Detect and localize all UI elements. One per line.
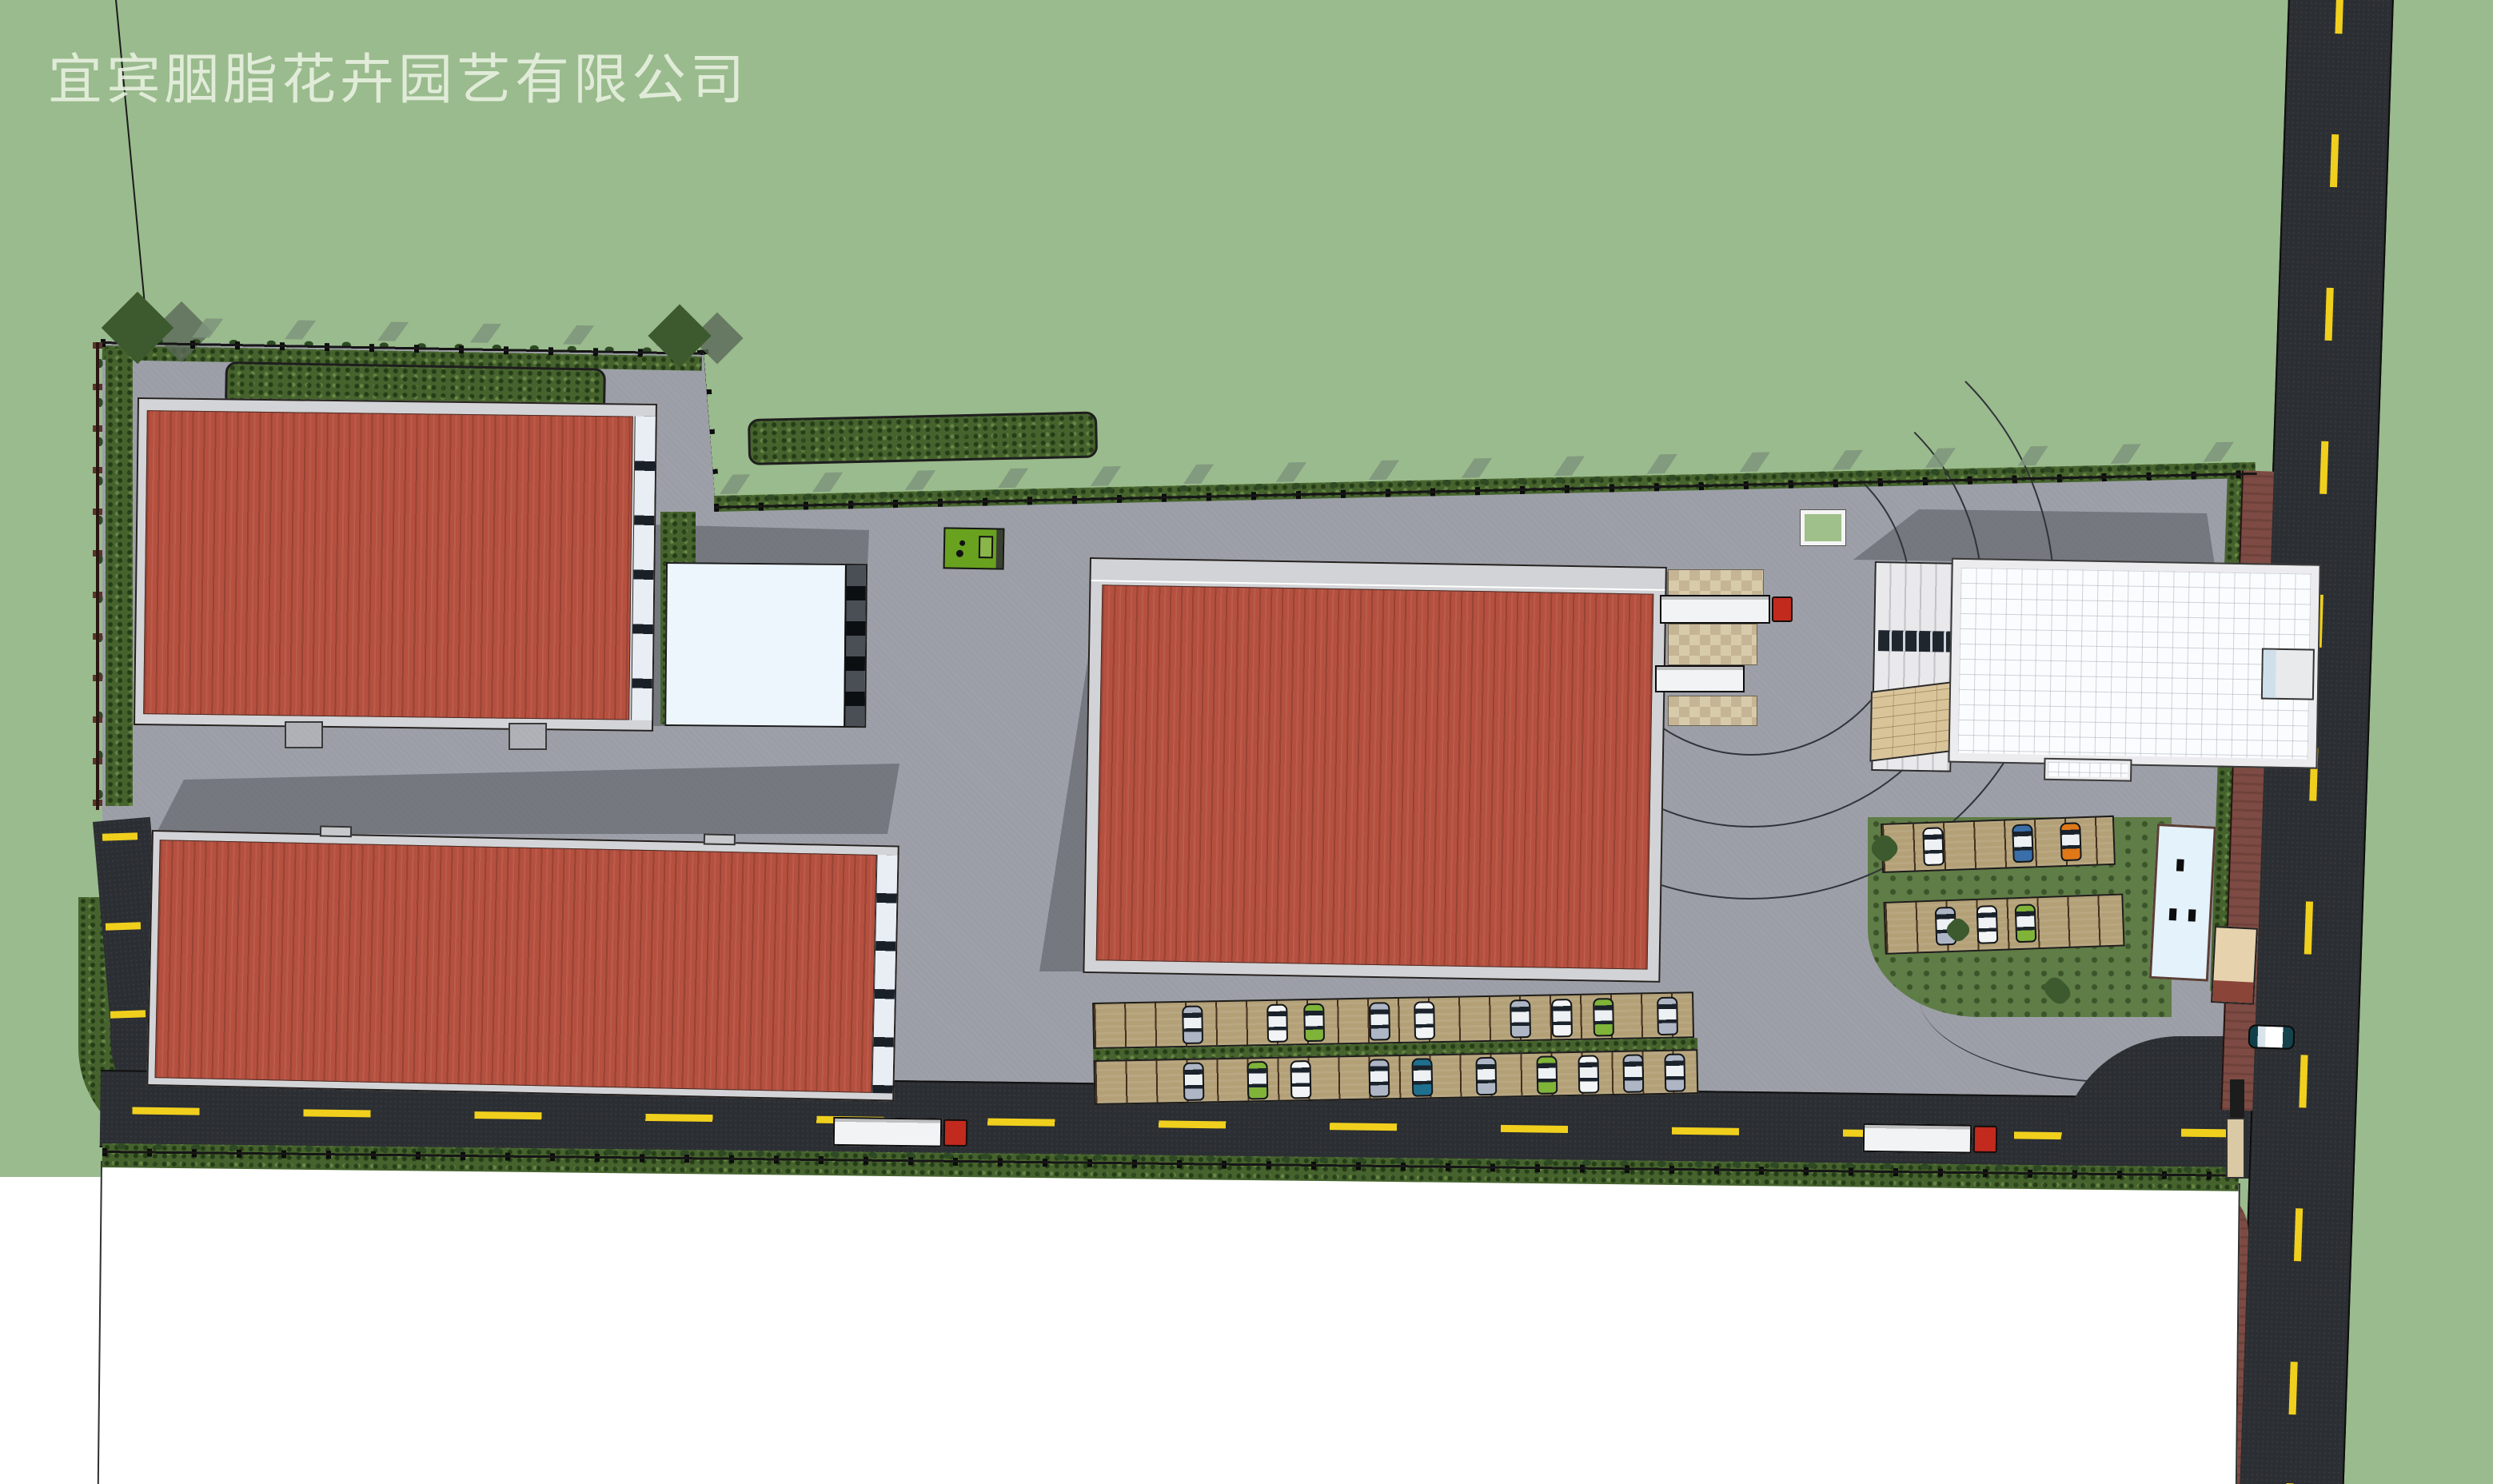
parked-car-green	[2015, 904, 2037, 943]
parking-row	[1883, 893, 2124, 954]
truck-dock-north	[1660, 593, 1796, 624]
truck-cab	[1772, 596, 1793, 622]
stoop	[285, 721, 323, 748]
road-car	[2248, 1024, 2296, 1050]
parked-car-green	[1246, 1061, 1268, 1099]
parked-car-silver	[1475, 1057, 1497, 1095]
building-warehouse-northwest	[134, 397, 657, 732]
roof-vent	[704, 833, 736, 845]
lane-dash	[110, 1010, 146, 1019]
gate-kiosk	[2211, 926, 2258, 1005]
annex-east	[2261, 648, 2315, 700]
box-figure	[956, 550, 963, 557]
roof-red	[155, 840, 877, 1093]
building-office-greenhouse	[1871, 552, 2355, 792]
roof-vent	[320, 825, 352, 837]
building-warehouse-southwest	[146, 830, 899, 1102]
parked-car-teal	[1411, 1058, 1433, 1096]
center-parking	[1092, 987, 1701, 1103]
window-band	[1878, 630, 1950, 652]
parked-car-white	[1578, 1055, 1599, 1093]
truck-south-west	[833, 1115, 971, 1149]
glass-canopy	[2045, 760, 2130, 780]
parked-car-silver	[1622, 1054, 1644, 1092]
gate-leaf	[2230, 1079, 2244, 1121]
box-side-dark	[996, 529, 1003, 568]
lane-dash	[102, 832, 138, 841]
building-cold-storage-cube	[664, 562, 868, 728]
parking-row	[1881, 816, 2116, 873]
parked-car-blue	[2012, 824, 2034, 863]
loading-dock-pad	[1668, 696, 1757, 726]
company-watermark: 宜宾胭脂花卉园艺有限公司	[48, 35, 748, 114]
building-gatehouse-annex	[2149, 824, 2216, 982]
parked-car-silver	[1182, 1005, 1203, 1043]
parked-car-white	[1976, 905, 1999, 944]
stop-bar	[2181, 1129, 2228, 1138]
truck-south-east	[1863, 1122, 2001, 1155]
parked-car-green	[1303, 1003, 1325, 1042]
centerline-dashes	[132, 1107, 2076, 1140]
truck-trailer	[1660, 595, 1770, 624]
parked-car-green	[1593, 998, 1614, 1036]
wall-east-pale	[631, 417, 656, 720]
roof-dot	[2176, 859, 2184, 871]
building-utility-green-box	[943, 527, 1005, 569]
white-ground-outer	[0, 1177, 112, 1484]
wall-east-pale	[872, 855, 897, 1093]
parked-car-white	[1290, 1060, 1311, 1099]
gate-pillar	[2226, 1118, 2245, 1179]
box-hatch	[979, 536, 993, 558]
parked-car-silver	[1657, 997, 1678, 1035]
roof-dot	[2188, 909, 2196, 921]
parked-car-silver	[1369, 1002, 1390, 1040]
painted-marking-rect	[1801, 510, 1845, 545]
fence-west	[93, 342, 102, 810]
stoop	[509, 723, 547, 750]
truck-cab	[1973, 1126, 1997, 1153]
roof-red	[143, 410, 633, 720]
hedge-west	[106, 349, 133, 806]
loading-dock-pad	[1668, 569, 1764, 596]
parked-car-green	[1536, 1055, 1558, 1094]
hedge-bed-2	[748, 411, 1098, 465]
east-parking	[1881, 815, 2133, 967]
truck-cab	[943, 1119, 967, 1147]
roof-red	[1096, 584, 1654, 969]
truck-trailer	[833, 1117, 942, 1147]
parked-car-white	[1266, 1004, 1288, 1043]
site-plan-render: 宜宾胭脂花卉园艺有限公司	[0, 0, 2493, 1484]
parked-car-white	[1414, 1001, 1435, 1039]
wall-east-louvers	[844, 565, 866, 726]
field-south	[98, 1161, 2240, 1484]
kiosk-band	[2212, 980, 2253, 1003]
truck-trailer	[1863, 1123, 1972, 1154]
lane-dash	[106, 922, 141, 931]
building-warehouse-main	[1083, 557, 1667, 983]
parked-car-white	[1551, 999, 1573, 1037]
loading-dock-pad	[1668, 624, 1757, 665]
box-figure	[959, 541, 965, 546]
parked-car-silver	[1368, 1059, 1390, 1097]
parked-car-silver	[1664, 1053, 1685, 1091]
parked-car-white	[1922, 827, 1945, 866]
parked-car-silver	[1183, 1062, 1205, 1100]
annex-glass	[2263, 649, 2276, 697]
roof-dot	[2169, 908, 2177, 920]
parked-car-silver	[1510, 999, 1531, 1038]
parked-car-orange	[2060, 822, 2082, 861]
trailer-dock-south	[1655, 665, 1745, 692]
